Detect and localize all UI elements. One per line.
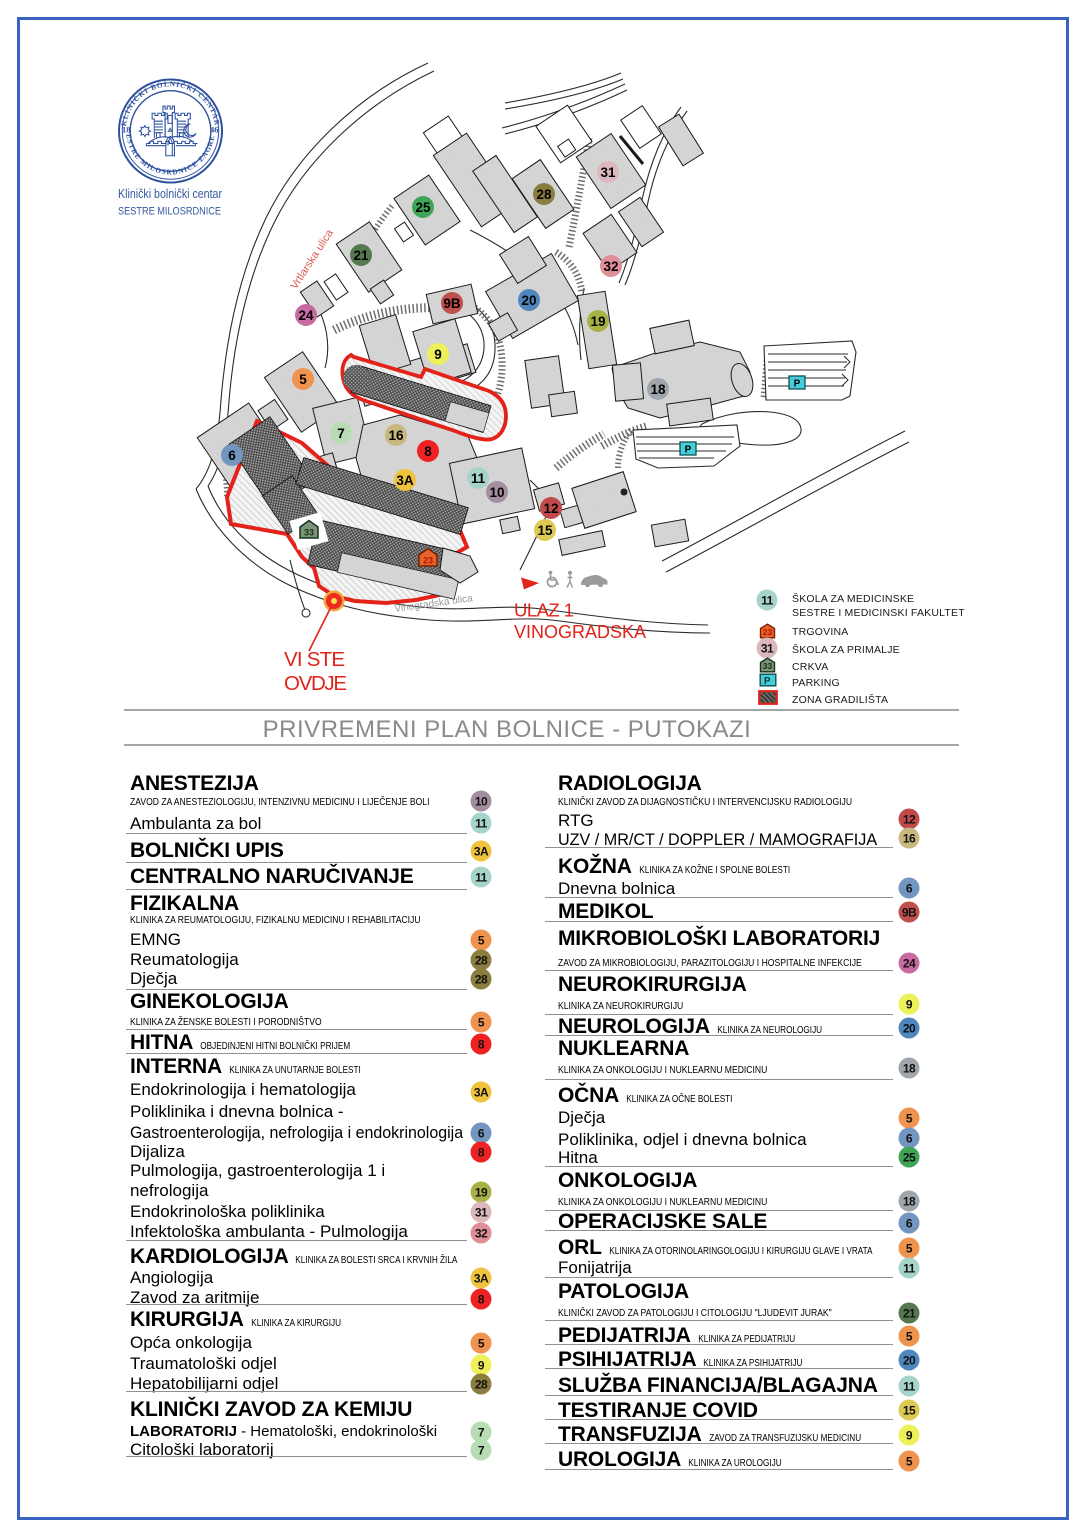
svg-text:33: 33 bbox=[763, 661, 773, 671]
svg-text:10: 10 bbox=[489, 485, 504, 500]
svg-text:23: 23 bbox=[763, 627, 773, 637]
svg-text:8: 8 bbox=[424, 444, 432, 459]
svg-text:18: 18 bbox=[650, 382, 666, 397]
svg-text:19: 19 bbox=[590, 314, 605, 329]
svg-text:12: 12 bbox=[543, 501, 558, 516]
svg-text:7: 7 bbox=[337, 426, 345, 441]
svg-text:9: 9 bbox=[434, 347, 442, 362]
svg-text:P: P bbox=[794, 379, 801, 390]
svg-text:23: 23 bbox=[423, 556, 433, 566]
svg-text:ULAZ 1: ULAZ 1 bbox=[514, 600, 574, 621]
svg-text:32: 32 bbox=[603, 259, 618, 274]
svg-text:25: 25 bbox=[415, 200, 431, 215]
svg-text:3A: 3A bbox=[396, 473, 414, 488]
svg-text:11: 11 bbox=[471, 471, 486, 486]
svg-text:P: P bbox=[764, 676, 771, 687]
svg-text:VINOGRADSKA: VINOGRADSKA bbox=[514, 621, 647, 642]
svg-text:20: 20 bbox=[521, 293, 536, 308]
svg-text:6: 6 bbox=[228, 448, 236, 463]
svg-text:VI STE: VI STE bbox=[284, 648, 345, 671]
svg-text:P: P bbox=[685, 445, 692, 456]
svg-text:24: 24 bbox=[298, 308, 314, 323]
svg-text:21: 21 bbox=[353, 248, 369, 263]
svg-text:33: 33 bbox=[304, 528, 314, 538]
svg-text:31: 31 bbox=[600, 165, 616, 180]
svg-text:OVDJE: OVDJE bbox=[284, 672, 347, 695]
svg-text:5: 5 bbox=[299, 372, 307, 387]
svg-text:9B: 9B bbox=[443, 296, 461, 311]
svg-text:16: 16 bbox=[388, 428, 404, 443]
svg-text:15: 15 bbox=[537, 523, 553, 538]
svg-text:28: 28 bbox=[536, 187, 552, 202]
